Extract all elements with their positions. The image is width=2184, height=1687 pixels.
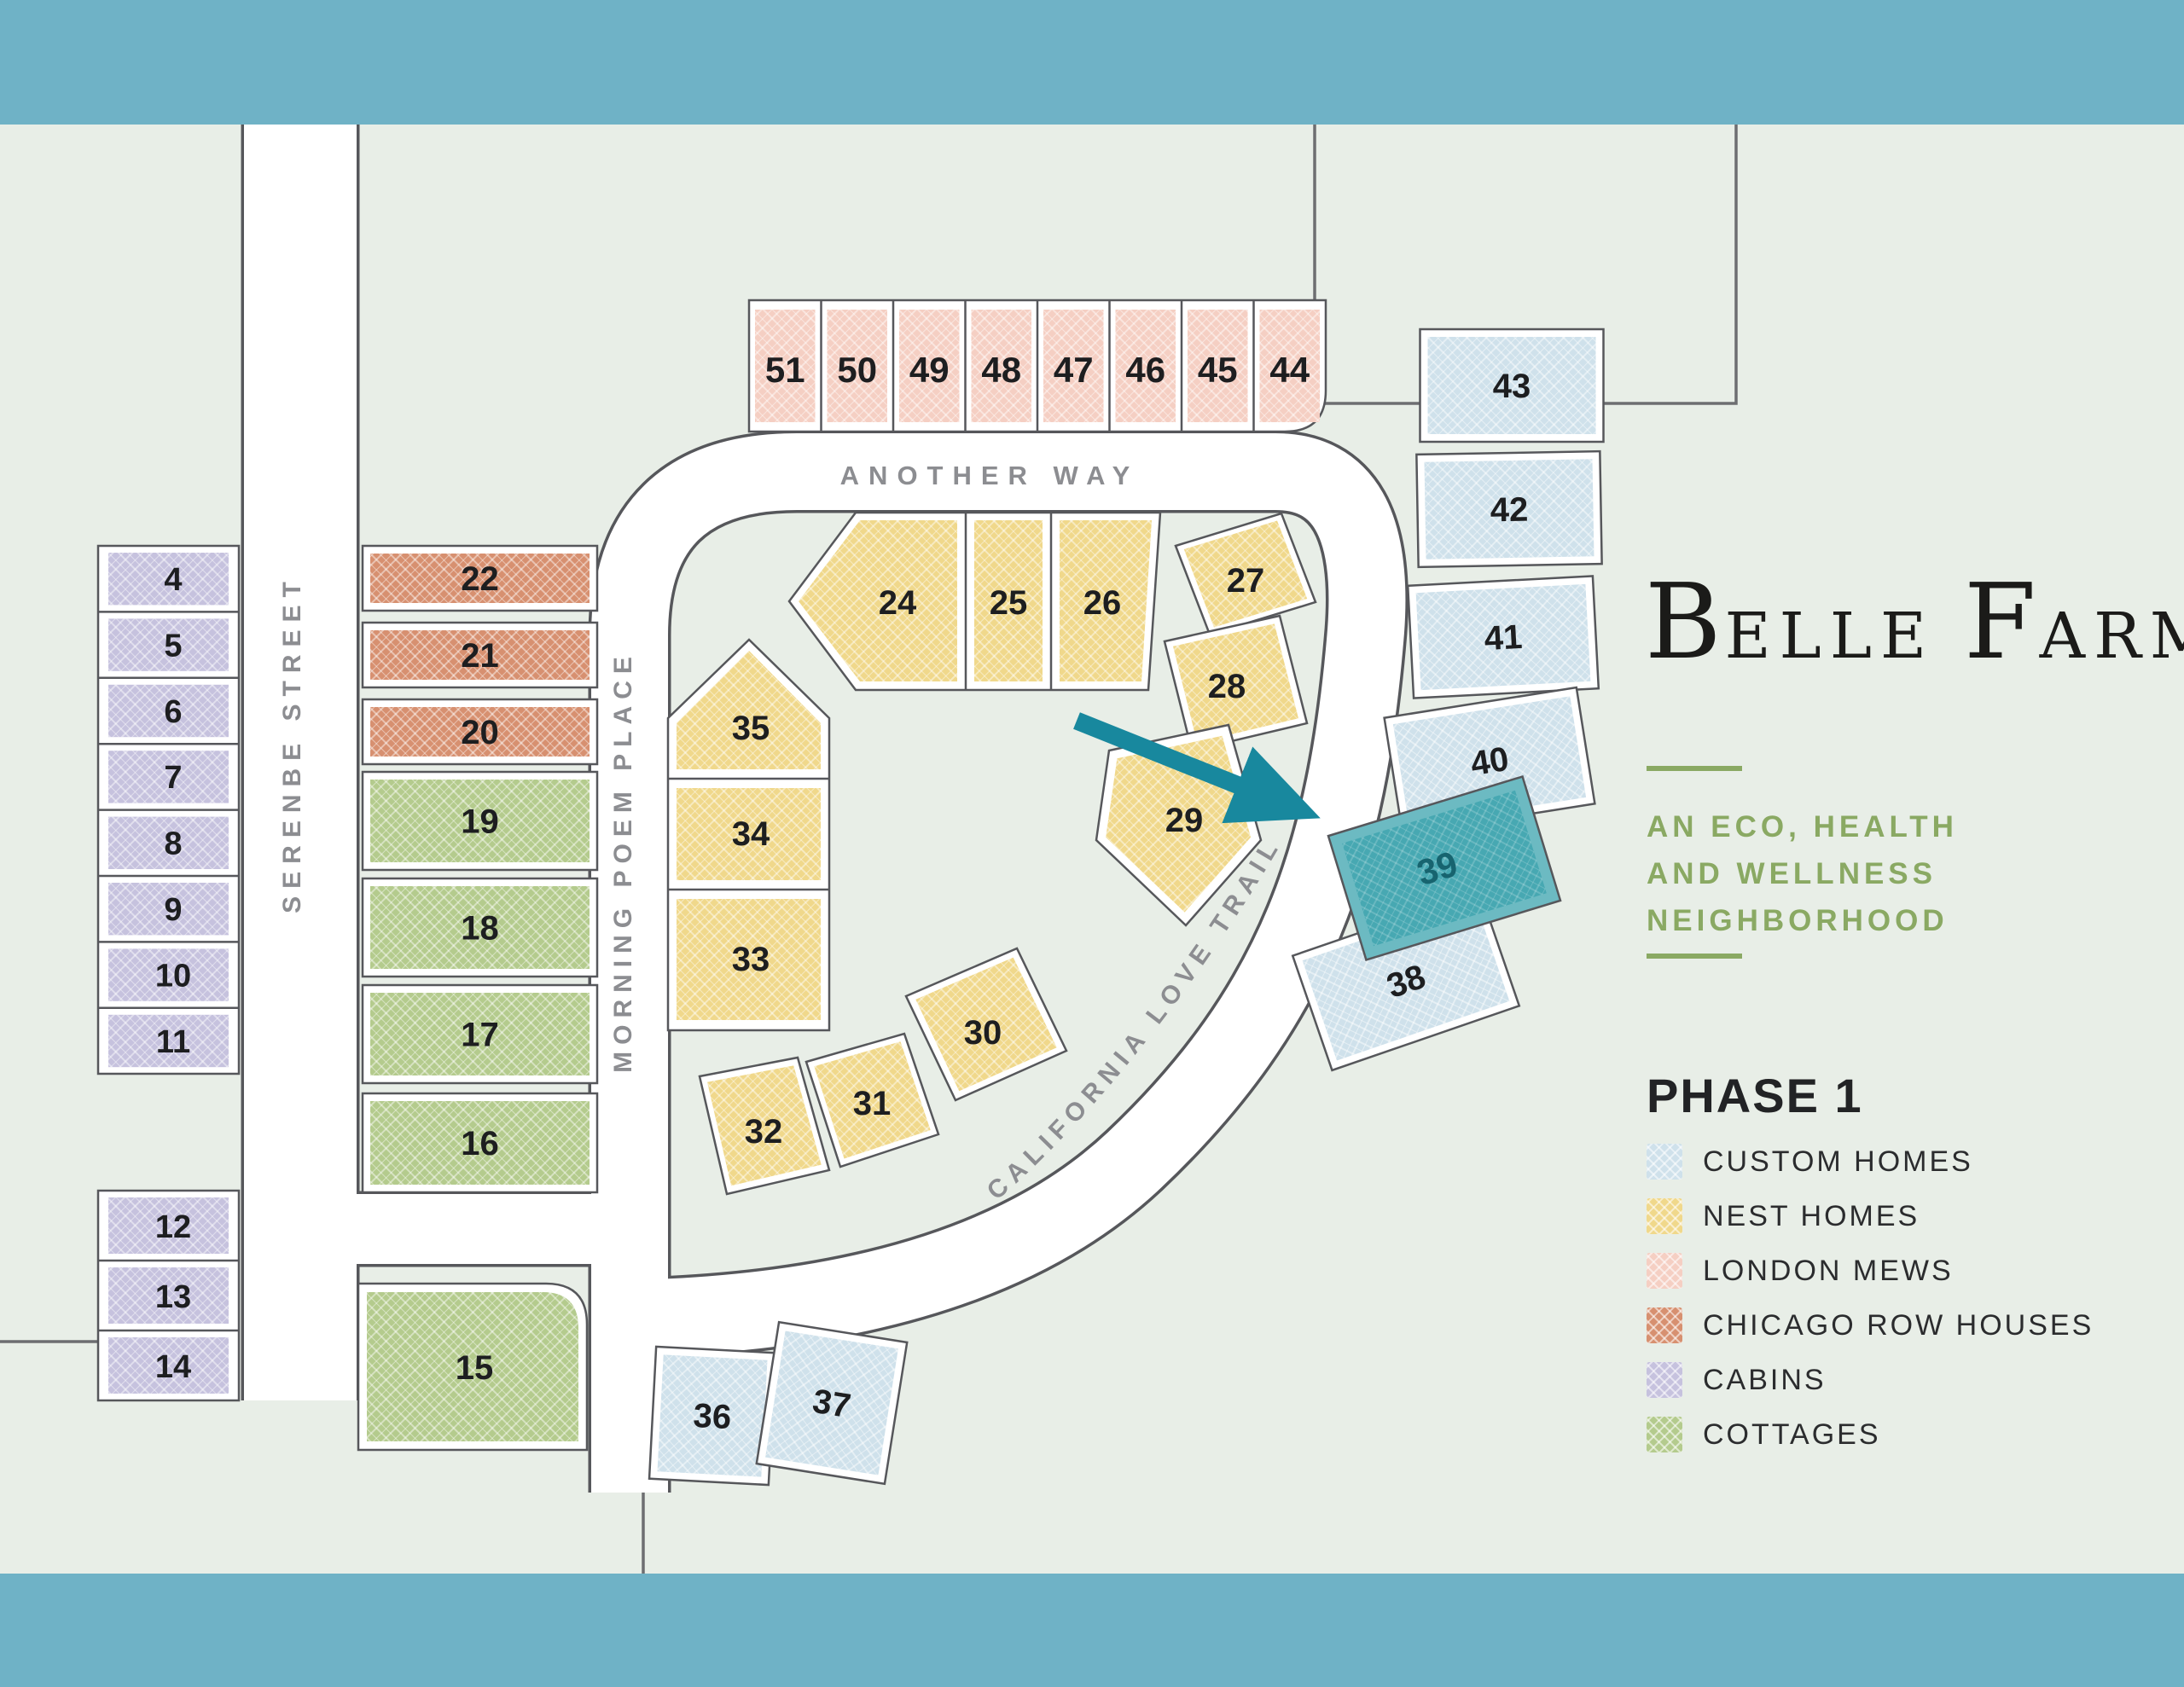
lot-34[interactable]: 34 xyxy=(677,788,821,880)
lot-25[interactable]: 25 xyxy=(974,520,1043,681)
lot-44[interactable]: 44 xyxy=(1260,310,1321,422)
lot-number-31: 31 xyxy=(853,1085,892,1122)
legend-label-custom: CUSTOM HOMES xyxy=(1703,1145,1973,1179)
lot-block-mews-row: 5150494847464544 xyxy=(749,300,1326,432)
lot-19[interactable]: 19 xyxy=(363,772,597,870)
legend-label-cabins: CABINS xyxy=(1703,1364,1827,1397)
tagline-line-2: AND WELLNESS xyxy=(1647,850,1958,897)
lot-48[interactable]: 48 xyxy=(972,310,1032,422)
lot-number-11: 11 xyxy=(156,1024,190,1060)
legend-item-cabins: CABINS xyxy=(1647,1353,2094,1407)
logo-word-arm: ARM xyxy=(2040,600,2184,673)
tagline-rule-bottom xyxy=(1647,954,1742,959)
lot-9[interactable]: 9 xyxy=(108,883,229,935)
phase-heading: PHASE 1 xyxy=(1647,1068,1863,1123)
tagline-line-3: NEIGHBORHOOD xyxy=(1647,897,1958,944)
lot-45[interactable]: 45 xyxy=(1188,310,1248,422)
lot-number-9: 9 xyxy=(164,892,182,928)
lot-number-19: 19 xyxy=(461,803,499,841)
lot-number-12: 12 xyxy=(155,1209,191,1245)
lot-number-36: 36 xyxy=(693,1397,733,1436)
legend-item-chicago: CHICAGO ROW HOUSES xyxy=(1647,1298,2094,1353)
lot-26[interactable]: 26 xyxy=(1060,520,1152,681)
legend-swatch-custom xyxy=(1647,1144,1682,1180)
lot-12[interactable]: 12 xyxy=(108,1197,229,1254)
bottom-water-band xyxy=(0,1574,2184,1687)
lot-number-29: 29 xyxy=(1165,802,1204,839)
lot-number-49: 49 xyxy=(909,350,950,390)
lot-number-17: 17 xyxy=(461,1017,499,1054)
tagline: AN ECO, HEALTH AND WELLNESS NEIGHBORHOOD xyxy=(1647,803,1958,944)
legend-label-cottages: COTTAGES xyxy=(1703,1418,1881,1452)
legend-swatch-cabins xyxy=(1647,1362,1682,1398)
lot-number-33: 33 xyxy=(732,941,770,978)
lot-17[interactable]: 17 xyxy=(363,985,597,1083)
lot-number-41: 41 xyxy=(1484,618,1524,658)
lot-block-cabins-north: 4567891011 xyxy=(98,546,239,1074)
lot-47[interactable]: 47 xyxy=(1043,310,1104,422)
logo-initial-b: B xyxy=(1645,561,1725,682)
lot-8[interactable]: 8 xyxy=(108,817,229,869)
street-label-serenbe: SERENBE STREET xyxy=(278,574,306,913)
lot-42[interactable]: 42 xyxy=(1416,451,1601,567)
lot-13[interactable]: 13 xyxy=(108,1267,229,1324)
lot-number-32: 32 xyxy=(745,1113,783,1151)
lot-number-45: 45 xyxy=(1198,350,1238,390)
lot-46[interactable]: 46 xyxy=(1116,310,1176,422)
lot-20[interactable]: 20 xyxy=(363,699,597,764)
lot-11[interactable]: 11 xyxy=(108,1015,229,1067)
lot-number-34: 34 xyxy=(732,815,770,853)
lot-number-13: 13 xyxy=(155,1279,191,1315)
legend-item-custom: CUSTOM HOMES xyxy=(1647,1134,2094,1189)
lot-16[interactable]: 16 xyxy=(363,1093,597,1192)
legend-item-nest: NEST HOMES xyxy=(1647,1189,2094,1244)
lot-number-4: 4 xyxy=(164,562,182,598)
lot-block-nest-top: 242526 xyxy=(789,513,1160,690)
legend-label-chicago: CHICAGO ROW HOUSES xyxy=(1703,1309,2094,1342)
lot-number-20: 20 xyxy=(461,714,499,751)
lot-number-18: 18 xyxy=(461,910,499,948)
lot-number-44: 44 xyxy=(1269,350,1310,390)
logo-initial-f: F xyxy=(1964,561,2040,682)
legend-label-mews: LONDON MEWS xyxy=(1703,1255,1954,1288)
lot-number-10: 10 xyxy=(155,958,191,994)
legend: CUSTOM HOMESNEST HOMESLONDON MEWSCHICAGO… xyxy=(1647,1134,2094,1462)
lot-18[interactable]: 18 xyxy=(363,878,597,977)
legend-item-cottages: COTTAGES xyxy=(1647,1407,2094,1462)
lot-number-7: 7 xyxy=(164,760,182,796)
belle-farm-logo: BELLEFARM xyxy=(1645,570,2165,674)
legend-swatch-nest xyxy=(1647,1198,1682,1234)
lot-number-24: 24 xyxy=(879,584,917,622)
lot-number-28: 28 xyxy=(1208,668,1246,705)
tagline-rule-top xyxy=(1647,766,1742,771)
lot-number-40: 40 xyxy=(1468,740,1512,783)
lot-21[interactable]: 21 xyxy=(363,623,597,687)
legend-item-mews: LONDON MEWS xyxy=(1647,1244,2094,1298)
lot-43[interactable]: 43 xyxy=(1420,329,1604,442)
lot-number-14: 14 xyxy=(155,1349,191,1385)
lot-number-48: 48 xyxy=(981,350,1021,390)
site-plan: 5150494847464544456789101112131424252635… xyxy=(0,0,2184,1687)
legend-swatch-chicago xyxy=(1647,1307,1682,1343)
legend-swatch-mews xyxy=(1647,1253,1682,1289)
lot-number-16: 16 xyxy=(461,1125,499,1162)
lot-number-26: 26 xyxy=(1083,584,1122,622)
lot-number-15: 15 xyxy=(456,1349,494,1387)
lot-5[interactable]: 5 xyxy=(108,618,229,670)
lot-number-51: 51 xyxy=(765,350,805,390)
lot-22[interactable]: 22 xyxy=(363,546,597,611)
lot-number-35: 35 xyxy=(732,710,770,747)
lot-number-5: 5 xyxy=(164,628,182,664)
tagline-line-1: AN ECO, HEALTH xyxy=(1647,803,1958,850)
lot-number-27: 27 xyxy=(1227,562,1265,600)
lot-4[interactable]: 4 xyxy=(108,553,229,605)
lot-15[interactable]: 15 xyxy=(358,1284,587,1450)
lot-50[interactable]: 50 xyxy=(828,310,888,422)
lot-number-30: 30 xyxy=(964,1014,1002,1052)
lot-number-42: 42 xyxy=(1490,491,1528,530)
lot-7[interactable]: 7 xyxy=(108,751,229,803)
lot-number-8: 8 xyxy=(164,826,182,862)
lot-number-50: 50 xyxy=(837,350,877,390)
lot-37[interactable]: 37 xyxy=(757,1322,907,1484)
street-label-morning-poem: MORNING POEM PLACE xyxy=(609,650,637,1073)
lot-number-21: 21 xyxy=(461,637,499,675)
lot-number-47: 47 xyxy=(1054,350,1094,390)
lot-number-37: 37 xyxy=(810,1383,853,1425)
lot-14[interactable]: 14 xyxy=(108,1337,229,1394)
lot-6[interactable]: 6 xyxy=(108,685,229,737)
lot-number-6: 6 xyxy=(164,694,182,730)
legend-swatch-cottages xyxy=(1647,1417,1682,1452)
lot-49[interactable]: 49 xyxy=(899,310,960,422)
lot-33[interactable]: 33 xyxy=(677,899,821,1020)
logo-word-elle: ELLE xyxy=(1725,600,1935,673)
lot-number-25: 25 xyxy=(990,584,1028,622)
lot-41[interactable]: 41 xyxy=(1408,576,1599,698)
lot-number-46: 46 xyxy=(1125,350,1165,390)
lot-block-nest-west: 353433 xyxy=(668,640,829,1030)
lot-number-22: 22 xyxy=(461,560,499,598)
top-water-band xyxy=(0,0,2184,125)
lot-10[interactable]: 10 xyxy=(108,948,229,1000)
lot-51[interactable]: 51 xyxy=(755,310,816,422)
lot-number-43: 43 xyxy=(1493,368,1531,405)
street-label-another-way: ANOTHER WAY xyxy=(840,461,1140,490)
lot-block-cabins-south: 121314 xyxy=(98,1191,239,1400)
legend-label-nest: NEST HOMES xyxy=(1703,1200,1920,1233)
